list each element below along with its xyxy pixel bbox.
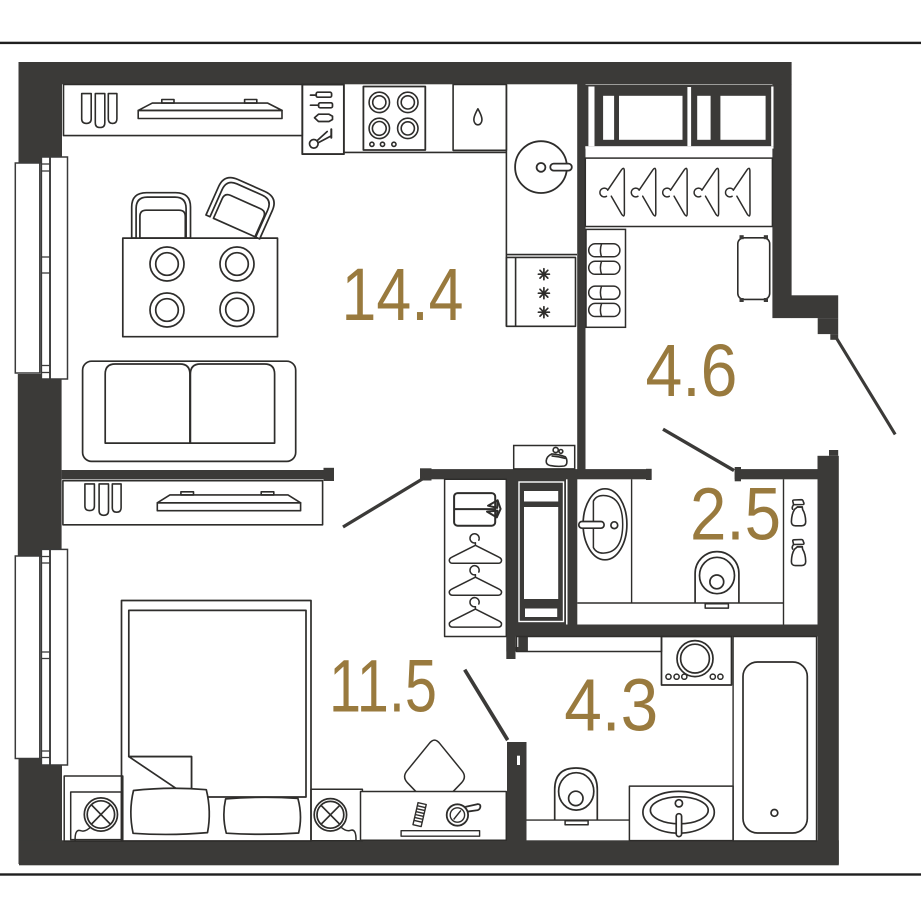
svg-text:11.5: 11.5 bbox=[329, 645, 437, 728]
svg-text:4.3: 4.3 bbox=[564, 664, 658, 747]
svg-text:2.5: 2.5 bbox=[690, 472, 781, 555]
svg-text:4.6: 4.6 bbox=[646, 329, 738, 412]
svg-text:14.4: 14.4 bbox=[342, 253, 464, 336]
